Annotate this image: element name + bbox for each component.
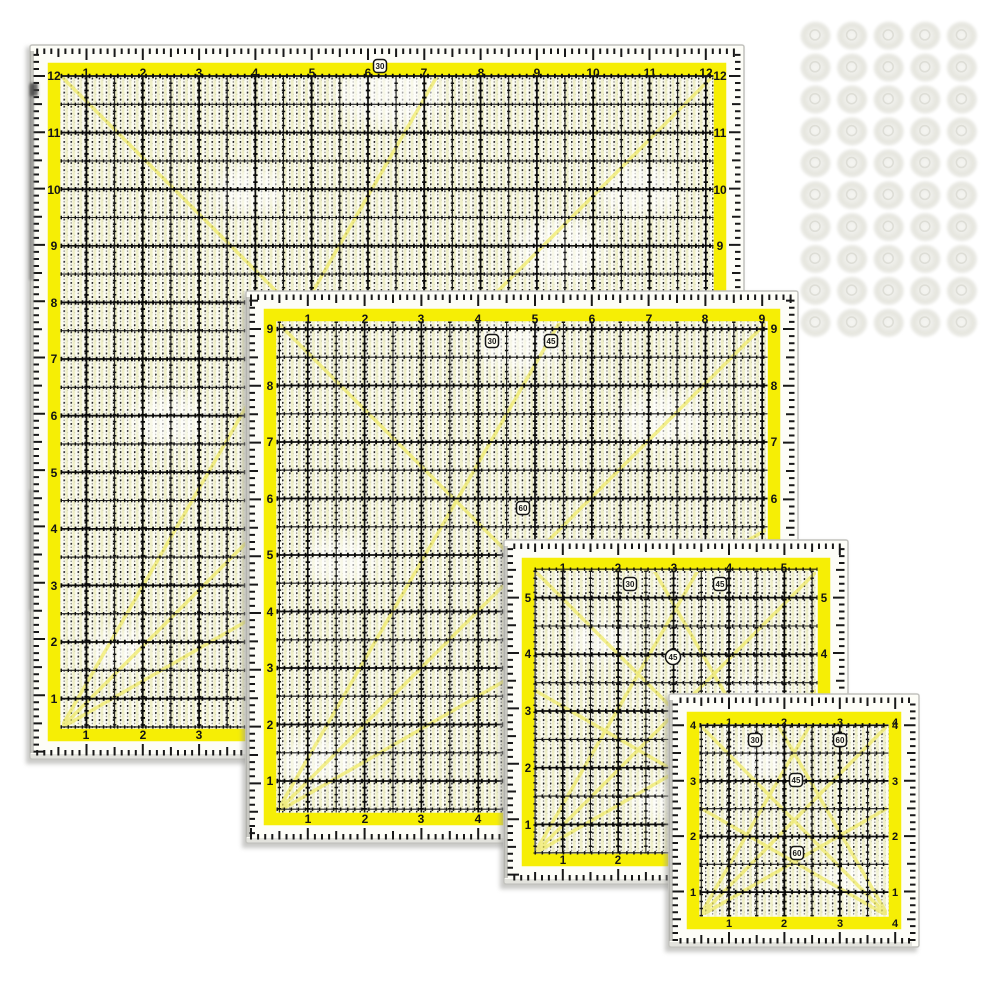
svg-text:5: 5 (51, 466, 58, 480)
svg-text:9: 9 (267, 322, 274, 336)
svg-text:1: 1 (305, 812, 312, 826)
svg-text:7: 7 (421, 66, 428, 80)
svg-text:12: 12 (713, 69, 727, 83)
svg-text:7: 7 (51, 352, 58, 366)
svg-text:1: 1 (690, 887, 696, 899)
svg-text:5: 5 (821, 593, 828, 605)
svg-text:1: 1 (83, 66, 90, 80)
svg-text:11: 11 (644, 66, 657, 80)
svg-text:9: 9 (51, 239, 58, 253)
svg-text:9: 9 (771, 322, 778, 336)
svg-text:6: 6 (267, 492, 274, 506)
svg-text:45: 45 (547, 337, 556, 346)
svg-text:3: 3 (837, 717, 843, 729)
svg-text:3: 3 (690, 776, 696, 788)
svg-text:8: 8 (771, 379, 778, 393)
svg-text:60: 60 (836, 736, 845, 745)
svg-text:5: 5 (267, 548, 274, 562)
svg-text:9: 9 (717, 239, 724, 253)
svg-text:9: 9 (534, 66, 541, 80)
svg-text:2: 2 (615, 563, 621, 575)
svg-text:1: 1 (560, 855, 567, 867)
svg-text:30: 30 (376, 62, 385, 71)
svg-text:3: 3 (196, 66, 203, 80)
svg-text:9: 9 (759, 312, 766, 326)
svg-text:4: 4 (475, 812, 482, 826)
svg-text:1: 1 (892, 887, 898, 899)
svg-text:3: 3 (671, 563, 677, 575)
svg-text:1: 1 (726, 717, 732, 729)
svg-text:1: 1 (525, 820, 532, 832)
svg-text:4: 4 (821, 649, 828, 661)
svg-text:10: 10 (47, 183, 61, 197)
svg-text:2: 2 (140, 66, 147, 80)
svg-text:5: 5 (781, 563, 788, 575)
svg-text:3: 3 (267, 661, 274, 675)
svg-text:4: 4 (726, 563, 733, 575)
svg-text:1: 1 (560, 563, 567, 575)
svg-text:7: 7 (267, 435, 274, 449)
svg-text:1: 1 (726, 918, 732, 930)
svg-text:5: 5 (532, 312, 539, 326)
svg-text:2: 2 (140, 728, 147, 742)
svg-text:4: 4 (475, 312, 482, 326)
svg-text:2: 2 (615, 855, 621, 867)
svg-text:2: 2 (51, 635, 58, 649)
svg-text:6: 6 (51, 409, 58, 423)
svg-text:4: 4 (267, 605, 274, 619)
svg-text:8: 8 (267, 379, 274, 393)
svg-text:2: 2 (892, 831, 898, 843)
svg-text:5: 5 (309, 66, 316, 80)
svg-text:2: 2 (267, 718, 274, 732)
svg-text:7: 7 (646, 312, 653, 326)
svg-text:4: 4 (252, 66, 259, 80)
svg-text:30: 30 (488, 337, 497, 346)
svg-text:10: 10 (586, 66, 600, 80)
svg-text:4: 4 (51, 522, 58, 536)
svg-text:1: 1 (83, 728, 90, 742)
svg-text:45: 45 (716, 580, 725, 589)
svg-text:45: 45 (792, 776, 801, 785)
svg-text:45: 45 (669, 653, 678, 662)
svg-text:8: 8 (51, 296, 58, 310)
svg-text:3: 3 (196, 728, 203, 742)
svg-text:6: 6 (365, 66, 372, 80)
svg-text:5: 5 (525, 593, 532, 605)
svg-text:12: 12 (47, 69, 61, 83)
svg-text:3: 3 (892, 776, 898, 788)
svg-text:2: 2 (525, 763, 531, 775)
svg-text:3: 3 (418, 312, 425, 326)
svg-text:2: 2 (781, 918, 787, 930)
svg-text:7: 7 (771, 435, 778, 449)
svg-text:6: 6 (771, 492, 778, 506)
svg-text:3: 3 (51, 579, 58, 593)
svg-text:2: 2 (362, 312, 369, 326)
svg-text:3: 3 (418, 812, 425, 826)
svg-text:1: 1 (51, 692, 58, 706)
svg-text:30: 30 (626, 580, 635, 589)
svg-text:6: 6 (589, 312, 596, 326)
svg-text:4: 4 (892, 720, 899, 732)
svg-text:1: 1 (267, 774, 274, 788)
svg-text:2: 2 (362, 812, 369, 826)
svg-text:60: 60 (519, 504, 528, 513)
svg-text:30: 30 (751, 736, 760, 745)
svg-text:1: 1 (305, 312, 312, 326)
svg-text:2: 2 (781, 717, 787, 729)
svg-text:4: 4 (690, 720, 697, 732)
svg-text:8: 8 (478, 66, 485, 80)
svg-text:11: 11 (48, 126, 61, 140)
svg-text:2: 2 (690, 831, 696, 843)
svg-text:3: 3 (837, 918, 843, 930)
svg-text:11: 11 (714, 126, 727, 140)
svg-text:60: 60 (793, 849, 802, 858)
svg-text:12: 12 (699, 66, 713, 80)
svg-text:8: 8 (702, 312, 709, 326)
svg-text:4: 4 (892, 918, 899, 930)
svg-text:3: 3 (525, 706, 531, 718)
svg-text:10: 10 (713, 183, 727, 197)
svg-text:4: 4 (525, 649, 532, 661)
